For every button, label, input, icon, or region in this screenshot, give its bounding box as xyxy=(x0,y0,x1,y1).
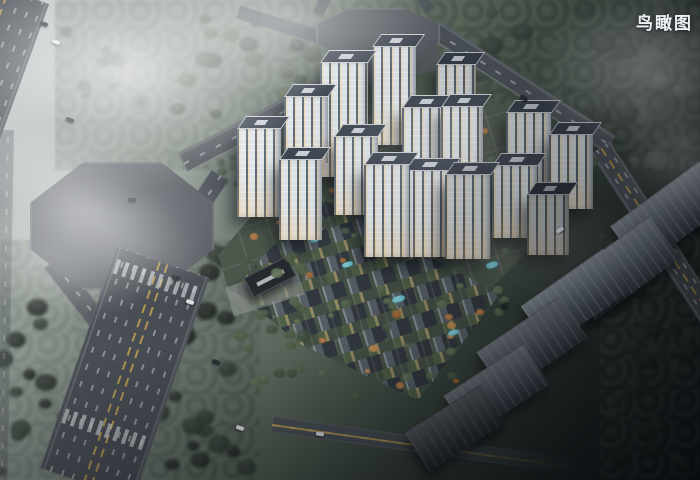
tree-canopy xyxy=(525,216,533,222)
lane-marking xyxy=(595,150,700,480)
tree-canopy xyxy=(632,327,651,343)
tree-canopy xyxy=(294,111,307,121)
tree-canopy xyxy=(138,96,146,102)
tree-canopy xyxy=(126,334,146,350)
tree-canopy xyxy=(33,318,48,330)
tree-canopy xyxy=(630,285,648,300)
tree-canopy xyxy=(301,100,313,110)
tree-canopy xyxy=(442,299,449,304)
tree-canopy xyxy=(329,188,336,193)
tree-canopy xyxy=(296,172,306,180)
tree-canopy xyxy=(500,219,510,227)
tree-canopy xyxy=(442,113,452,121)
tree-canopy xyxy=(658,138,672,149)
tree-canopy xyxy=(681,327,697,340)
tree-canopy xyxy=(454,20,465,29)
lane-marking xyxy=(396,60,469,246)
tree-canopy xyxy=(446,348,455,355)
tower-roof xyxy=(549,122,602,135)
road-edge-line xyxy=(129,277,207,480)
fog-patch xyxy=(0,0,330,190)
residential-tower xyxy=(279,147,322,240)
tree-canopy xyxy=(396,177,405,184)
tree-canopy xyxy=(308,103,325,116)
tree-canopy xyxy=(304,167,313,174)
swimming-pool xyxy=(342,261,354,269)
tree-canopy xyxy=(204,29,217,39)
tree-canopy xyxy=(210,110,222,120)
tree-canopy xyxy=(487,156,498,165)
rooftop-unit xyxy=(543,186,558,191)
tree-canopy xyxy=(669,454,685,467)
tree-canopy xyxy=(623,340,642,355)
tree-canopy xyxy=(199,15,211,25)
tree-canopy xyxy=(269,128,276,134)
tree-canopy xyxy=(135,98,147,107)
tree-canopy xyxy=(494,308,505,317)
tree-canopy xyxy=(218,362,237,377)
car xyxy=(556,226,565,234)
tower-facade xyxy=(237,129,281,217)
tree-canopy xyxy=(671,364,682,373)
tree-canopy xyxy=(474,86,494,102)
tree-canopy xyxy=(261,310,269,316)
tree-canopy xyxy=(523,74,540,88)
rooftop-unit xyxy=(388,38,403,43)
ground-roads-layer xyxy=(0,0,700,480)
tree-canopy xyxy=(140,394,161,410)
tree-canopy xyxy=(293,302,302,309)
tower-roof xyxy=(237,116,290,129)
tree-canopy xyxy=(77,80,91,91)
octagon-intersection-north xyxy=(316,8,440,60)
road-site-northeast xyxy=(431,22,616,151)
tree-canopy xyxy=(591,33,614,51)
tower-facade xyxy=(334,137,378,215)
octagon-intersection-west xyxy=(30,162,214,290)
villa-row-grid xyxy=(150,30,700,480)
tree-canopy xyxy=(289,39,305,52)
lane-marking xyxy=(168,175,221,256)
residential-tower xyxy=(402,95,447,196)
tree-canopy xyxy=(296,330,310,341)
dusk-vignette-overlay xyxy=(0,0,700,480)
tree-canopy xyxy=(469,109,486,122)
lane-marking-yellow xyxy=(0,0,10,229)
tower-roof xyxy=(402,95,456,108)
road-edge-line xyxy=(187,85,352,172)
villa-row-roofs xyxy=(182,133,646,289)
tree-canopy xyxy=(208,435,231,453)
tower-facade xyxy=(372,47,416,145)
tower-facade xyxy=(527,195,569,255)
clubhouse-skylight xyxy=(256,269,284,286)
tree-canopy xyxy=(96,349,111,361)
tree-canopy xyxy=(685,86,698,96)
residential-tower xyxy=(372,34,416,145)
car xyxy=(236,425,245,431)
tree-canopy xyxy=(649,415,661,425)
tree-canopy xyxy=(277,87,294,100)
road-stub xyxy=(405,0,435,15)
tree-canopy xyxy=(499,110,521,127)
residential-tower xyxy=(549,122,593,209)
villa-row-courtyards xyxy=(155,45,617,196)
lane-marking xyxy=(52,261,103,325)
tree-canopy xyxy=(328,313,335,318)
tree-canopy xyxy=(282,69,294,79)
tree-canopy xyxy=(486,8,498,18)
lane-marking xyxy=(0,1,44,241)
tree-canopy xyxy=(57,411,70,422)
tree-canopy xyxy=(196,410,214,425)
tree-canopy xyxy=(636,421,656,437)
tree-canopy xyxy=(531,110,543,120)
residential-tower xyxy=(441,94,483,191)
tree-canopy xyxy=(147,404,170,422)
residential-tower xyxy=(436,52,476,123)
tree-canopy xyxy=(187,441,200,451)
boulevard-southwest xyxy=(40,246,209,480)
tree-canopy xyxy=(546,40,565,55)
tree-canopy xyxy=(629,156,640,165)
tree-canopy xyxy=(588,107,611,125)
tree-canopy xyxy=(512,24,532,40)
tree-canopy xyxy=(300,199,310,207)
tree-canopy xyxy=(526,84,539,95)
fog-patch xyxy=(0,195,170,325)
villa-row-courtyards xyxy=(163,71,625,222)
tree-canopy xyxy=(338,109,356,123)
tree-canopy xyxy=(679,344,699,360)
tree-canopy xyxy=(626,258,647,275)
villa-row-courtyards xyxy=(178,122,640,273)
tree-canopy xyxy=(338,119,356,134)
context-building xyxy=(443,344,549,436)
tree-canopy xyxy=(435,236,446,245)
tree-canopy xyxy=(676,319,695,335)
tree-canopy xyxy=(82,91,91,99)
villa-row-courtyards xyxy=(186,148,648,299)
residential-tower xyxy=(506,100,552,193)
villa-district xyxy=(0,0,700,480)
tree-canopy xyxy=(686,263,700,276)
context-building xyxy=(477,296,588,393)
tree-canopy xyxy=(476,197,486,205)
car xyxy=(66,117,75,123)
tree-canopy xyxy=(138,300,151,310)
villa-row-roofs xyxy=(229,288,693,444)
tower-facade xyxy=(549,135,593,209)
tree-canopy xyxy=(642,308,657,320)
tree-canopy xyxy=(286,342,295,349)
tree-canopy xyxy=(352,393,359,399)
road-far-west xyxy=(0,130,14,480)
rooftop-unit xyxy=(457,98,472,103)
tree-canopy xyxy=(453,379,459,383)
lane-marking xyxy=(0,0,33,238)
tree-canopy xyxy=(649,419,667,434)
tree-canopy xyxy=(667,135,684,149)
tower-roof xyxy=(441,94,492,107)
villa-row-courtyards xyxy=(226,277,688,428)
tree-canopy xyxy=(108,81,119,89)
aerial-rendering-canvas: 鸟瞰图 xyxy=(0,0,700,480)
rooftop-unit xyxy=(523,104,539,109)
tree-canopy xyxy=(214,248,240,269)
road-edge-line xyxy=(43,247,121,470)
rooftop-unit xyxy=(451,56,465,61)
tree-canopy xyxy=(497,171,505,177)
tree-canopy xyxy=(642,44,651,51)
tree-canopy xyxy=(234,181,241,186)
road-edge-line xyxy=(591,153,700,480)
tower-roof xyxy=(364,152,419,165)
residential-tower xyxy=(320,50,368,177)
tree-canopy xyxy=(235,331,248,341)
tree-canopy xyxy=(679,464,692,475)
tree-canopy xyxy=(77,416,93,429)
tree-canopy xyxy=(228,127,247,142)
tree-canopy xyxy=(485,159,500,171)
residential-tower xyxy=(284,84,328,163)
tree-canopy xyxy=(383,243,389,248)
tree-canopy xyxy=(471,193,480,201)
tree-canopy xyxy=(476,114,490,126)
tree-canopy xyxy=(649,0,672,7)
tree-canopy xyxy=(530,203,536,208)
tree-canopy xyxy=(382,323,391,330)
tree-canopy xyxy=(241,146,248,152)
forest-canopy-texture xyxy=(55,0,700,170)
tree-canopy xyxy=(634,108,656,125)
tree-canopy xyxy=(295,366,304,373)
rooftop-unit xyxy=(422,162,438,167)
tree-canopy xyxy=(306,272,313,278)
tree-canopy xyxy=(85,247,99,258)
tree-canopy xyxy=(152,292,178,313)
villa-row-courtyards xyxy=(242,329,700,480)
tree-canopy xyxy=(645,55,654,63)
tree-canopy xyxy=(101,283,116,295)
tree-canopy xyxy=(388,302,397,310)
tree-canopy xyxy=(245,52,263,67)
tree-canopy xyxy=(287,369,298,378)
tree-canopy xyxy=(217,311,235,326)
tree-canopy xyxy=(241,152,248,158)
tree-canopy xyxy=(78,427,94,440)
tree-canopy xyxy=(640,44,650,52)
tree-canopy xyxy=(39,399,52,409)
lane-marking xyxy=(272,424,599,472)
lane-marking-yellow xyxy=(600,147,700,480)
tree-canopy xyxy=(610,451,631,468)
tree-canopy xyxy=(336,81,354,95)
tree-canopy xyxy=(392,58,412,74)
tree-canopy xyxy=(294,75,306,85)
tower-roof xyxy=(445,162,500,175)
tree-canopy xyxy=(322,166,331,174)
tree-canopy xyxy=(266,325,278,334)
tree-canopy xyxy=(643,442,662,457)
residential-tower xyxy=(237,116,281,217)
tree-canopy xyxy=(406,192,414,198)
tower-facade xyxy=(364,165,410,257)
tree-canopy xyxy=(290,252,299,259)
tree-canopy xyxy=(576,2,596,18)
tower-roof xyxy=(284,84,337,97)
tree-canopy xyxy=(143,330,162,345)
tree-canopy xyxy=(384,338,391,344)
tree-canopy xyxy=(498,298,505,303)
tree-canopy xyxy=(634,97,649,109)
tree-canopy xyxy=(9,387,22,398)
tree-canopy xyxy=(405,112,416,121)
context-building xyxy=(610,162,700,269)
tree-canopy xyxy=(195,51,215,67)
tree-canopy xyxy=(481,199,493,208)
residential-tower xyxy=(445,162,491,259)
tower-facade xyxy=(445,175,491,259)
crosswalk xyxy=(113,259,201,302)
tree-canopy xyxy=(612,391,626,402)
development-site-ground xyxy=(0,0,700,480)
tree-canopy xyxy=(473,210,480,216)
tree-canopy xyxy=(6,332,27,348)
entrance-plaza xyxy=(225,266,305,316)
road-edge-line xyxy=(440,23,616,138)
tree-canopy xyxy=(426,147,432,152)
tree-canopy xyxy=(317,103,329,112)
tree-canopy xyxy=(378,285,386,292)
tree-canopy xyxy=(89,407,114,427)
tree-canopy xyxy=(670,38,685,50)
villa-row-roofs xyxy=(221,262,685,418)
tree-canopy xyxy=(242,257,251,264)
lane-marking xyxy=(49,249,127,472)
tree-canopy xyxy=(217,168,226,175)
tree-canopy xyxy=(206,245,226,261)
tower-roof xyxy=(372,34,425,47)
tree-canopy xyxy=(444,110,462,124)
tree-canopy xyxy=(648,97,671,115)
tree-canopy xyxy=(476,223,486,231)
tree-canopy xyxy=(609,297,629,313)
tree-canopy xyxy=(493,286,502,294)
tree-canopy xyxy=(23,369,36,380)
car xyxy=(500,302,509,310)
context-building xyxy=(405,385,506,472)
car xyxy=(128,198,136,202)
lane-marking-yellow xyxy=(272,424,599,472)
tree-canopy xyxy=(432,211,440,217)
tower-roof xyxy=(527,182,578,195)
tree-canopy xyxy=(396,382,404,389)
tree-canopy xyxy=(271,268,283,278)
tree-canopy xyxy=(492,232,498,237)
fog-patch xyxy=(140,0,440,100)
tree-canopy xyxy=(250,17,262,27)
swimming-pool xyxy=(485,260,498,269)
villa-row-roofs xyxy=(197,185,661,341)
lane-marking xyxy=(183,77,348,164)
road-stub-north xyxy=(236,5,324,44)
road-stub-southwest xyxy=(44,256,109,331)
rooftop-unit xyxy=(295,151,310,156)
site-landscape-layer xyxy=(0,0,700,480)
tree-canopy xyxy=(372,135,377,139)
tree-canopy xyxy=(492,219,504,228)
tree-canopy xyxy=(274,192,283,199)
tree-canopy xyxy=(629,388,643,399)
tower-facade xyxy=(402,108,447,196)
tower-facade xyxy=(279,160,322,240)
residential-tower xyxy=(492,153,538,238)
lane-marking xyxy=(72,257,150,480)
tree-canopy xyxy=(481,128,488,133)
tree-canopy xyxy=(477,253,485,260)
tree-canopy xyxy=(239,37,258,52)
tree-canopy xyxy=(645,150,668,168)
tree-canopy xyxy=(227,446,240,457)
tree-canopy xyxy=(679,75,692,86)
lane-marking xyxy=(0,0,22,234)
swimming-pool xyxy=(451,179,480,199)
rooftop-unit xyxy=(338,54,354,59)
tower-facade xyxy=(320,63,368,177)
tree-canopy xyxy=(178,73,196,87)
tower-facade xyxy=(404,171,452,257)
tower-roof xyxy=(404,158,461,171)
tree-canopy xyxy=(658,387,669,396)
crosswalk xyxy=(61,408,149,451)
car xyxy=(52,39,61,45)
tree-canopy xyxy=(554,149,573,164)
villa-row-courtyards xyxy=(234,303,696,454)
tree-canopy xyxy=(549,128,566,142)
villa-row-roofs xyxy=(213,236,677,392)
tree-canopy xyxy=(676,254,692,267)
tree-canopy xyxy=(219,177,229,185)
tree-canopy xyxy=(445,314,453,320)
tree-canopy xyxy=(369,345,378,352)
tower-roof xyxy=(506,100,561,113)
tree-canopy xyxy=(0,350,13,368)
tree-canopy xyxy=(479,186,488,193)
tree-canopy xyxy=(668,326,681,336)
residential-tower xyxy=(364,152,410,257)
tree-canopy xyxy=(618,416,628,424)
tree-canopy xyxy=(102,52,116,64)
tree-canopy xyxy=(404,343,411,348)
tree-canopy xyxy=(274,369,285,378)
lane-marking xyxy=(111,270,189,480)
tree-canopy xyxy=(271,206,279,212)
tree-canopy xyxy=(230,155,236,160)
tree-canopy xyxy=(516,133,523,139)
tree-canopy xyxy=(341,228,350,235)
tree-canopy xyxy=(196,424,213,437)
villa-row-roofs xyxy=(158,55,622,211)
tree-canopy xyxy=(347,127,367,143)
tree-canopy xyxy=(593,36,613,52)
tree-canopy xyxy=(205,182,214,189)
tree-canopy xyxy=(677,136,695,150)
tree-canopy xyxy=(625,272,636,281)
tree-canopy xyxy=(379,126,398,141)
road-edge-line xyxy=(608,141,700,478)
tree-canopy xyxy=(653,347,667,358)
